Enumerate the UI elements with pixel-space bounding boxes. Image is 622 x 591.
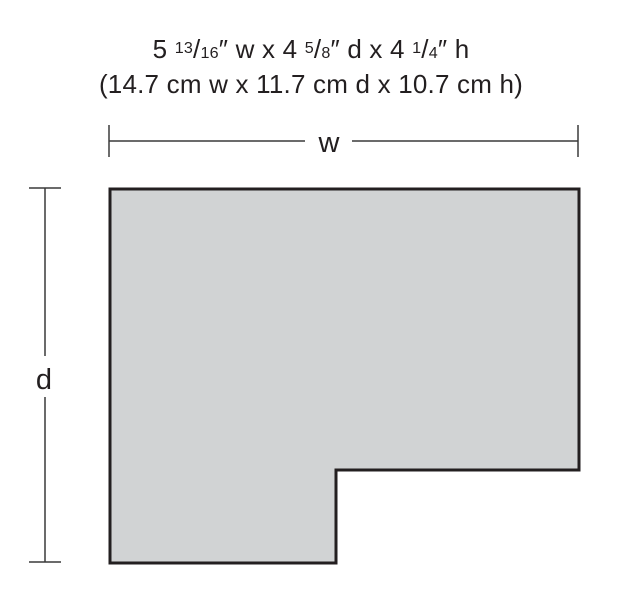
footprint-diagram: w d bbox=[0, 0, 622, 591]
width-label: w bbox=[318, 127, 341, 159]
width-dimension: w bbox=[109, 125, 578, 159]
depth-label: d bbox=[36, 364, 52, 396]
footprint-shape bbox=[110, 189, 579, 563]
depth-dimension: d bbox=[29, 188, 61, 562]
dimension-diagram: 5 13/16″ w x 4 5/8″ d x 4 1/4″ h (14.7 c… bbox=[0, 0, 622, 591]
